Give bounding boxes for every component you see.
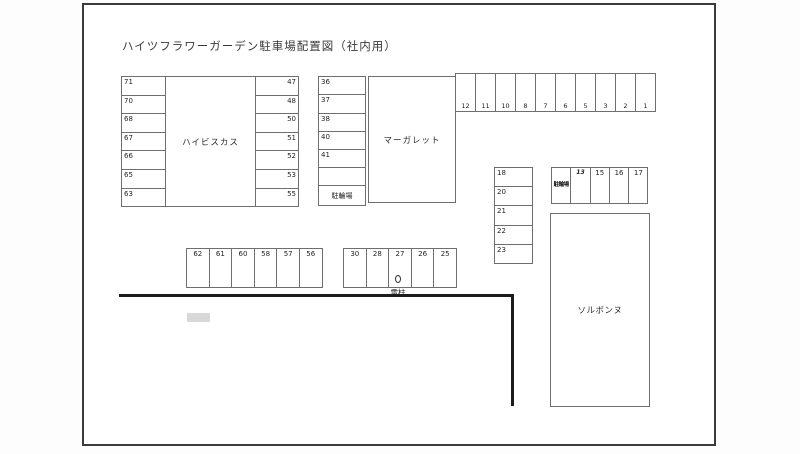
- parking-cell: 11: [475, 73, 496, 112]
- parking-map-screenshot: ハイツフラワーガーデン駐車場配置図（社内用） 71 70 68 67 66 65…: [0, 0, 800, 454]
- parking-cell: 56: [299, 248, 323, 288]
- parking-cell: 67: [121, 132, 166, 152]
- parking-cell: 66: [121, 150, 166, 170]
- parking-cell: 68: [121, 113, 166, 133]
- page-title: ハイツフラワーガーデン駐車場配置図（社内用）: [122, 38, 397, 54]
- gray-marker: [187, 313, 210, 322]
- parking-cell: 10: [495, 73, 516, 112]
- parking-cell: 36: [318, 76, 366, 95]
- building-margaret: マーガレット: [368, 76, 456, 203]
- building-hibiscus: ハイビスカス: [165, 76, 256, 207]
- parking-cell: 30: [343, 248, 367, 288]
- parking-cell: 6: [555, 73, 576, 112]
- parking-cell: 22: [494, 225, 533, 245]
- mid-parking-column: 18 20 21 22 23: [494, 167, 533, 264]
- parking-cell: 70: [121, 95, 166, 115]
- parking-cell: 38: [318, 113, 366, 132]
- parking-cell: 61: [209, 248, 233, 288]
- parking-cell: 18: [494, 167, 533, 187]
- parking-cell: 63: [121, 188, 166, 208]
- parking-cell: 25: [433, 248, 457, 288]
- parking-cell: 13: [570, 167, 590, 204]
- parking-cell: 20: [494, 186, 533, 206]
- small-parking-block: 駐輪場 13 15 16 17: [551, 167, 648, 204]
- block1-left-column: 71 70 68 67 66 65 63: [121, 76, 166, 207]
- road-line-horizontal: [119, 294, 514, 297]
- parking-cell: 15: [590, 167, 610, 204]
- parking-cell: 12: [455, 73, 476, 112]
- block2-left-column: 36 37 38 40 41: [318, 76, 366, 187]
- parking-cell: 26: [411, 248, 435, 288]
- parking-cell: 55: [255, 188, 299, 208]
- parking-cell: 7: [535, 73, 556, 112]
- parking-cell: 28: [366, 248, 390, 288]
- parking-cell: 21: [494, 205, 533, 225]
- parking-cell: 23: [494, 244, 533, 264]
- bike-parking-box: 駐輪場: [318, 185, 366, 206]
- parking-cell: 37: [318, 94, 366, 113]
- parking-cell: 50: [255, 113, 299, 133]
- parking-cell: 40: [318, 131, 366, 150]
- parking-cell: 65: [121, 169, 166, 189]
- bike-parking-cell: 駐輪場: [551, 167, 571, 204]
- parking-cell: 58: [254, 248, 278, 288]
- parking-cell: 52: [255, 150, 299, 170]
- parking-cell: 27: [388, 248, 412, 288]
- parking-cell: 3: [595, 73, 616, 112]
- building-sorbonne: ソルボンヌ: [550, 213, 650, 407]
- top-parking-row: 12 11 10 8 7 6 5 3 2 1: [455, 73, 656, 112]
- parking-cell: 71: [121, 76, 166, 96]
- parking-cell: 17: [628, 167, 648, 204]
- parking-cell: 57: [276, 248, 300, 288]
- parking-cell: 62: [186, 248, 210, 288]
- road-line-vertical: [511, 294, 514, 406]
- parking-cell: 5: [575, 73, 596, 112]
- parking-cell: [318, 167, 366, 186]
- parking-cell: 51: [255, 132, 299, 152]
- parking-cell: 2: [615, 73, 636, 112]
- utility-pole-icon: [395, 275, 401, 283]
- parking-cell: 48: [255, 95, 299, 115]
- parking-cell: 1: [635, 73, 656, 112]
- block1-right-column: 47 48 50 51 52 53 55: [255, 76, 299, 207]
- parking-cell: 53: [255, 169, 299, 189]
- parking-cell: 47: [255, 76, 299, 96]
- bottom-parking-row-a: 62 61 60 58 57 56: [186, 248, 323, 288]
- parking-cell: 41: [318, 149, 366, 168]
- parking-cell: 8: [515, 73, 536, 112]
- parking-cell: 60: [231, 248, 255, 288]
- bottom-parking-row-b: 30 28 27 26 25: [343, 248, 457, 288]
- parking-cell: 16: [609, 167, 629, 204]
